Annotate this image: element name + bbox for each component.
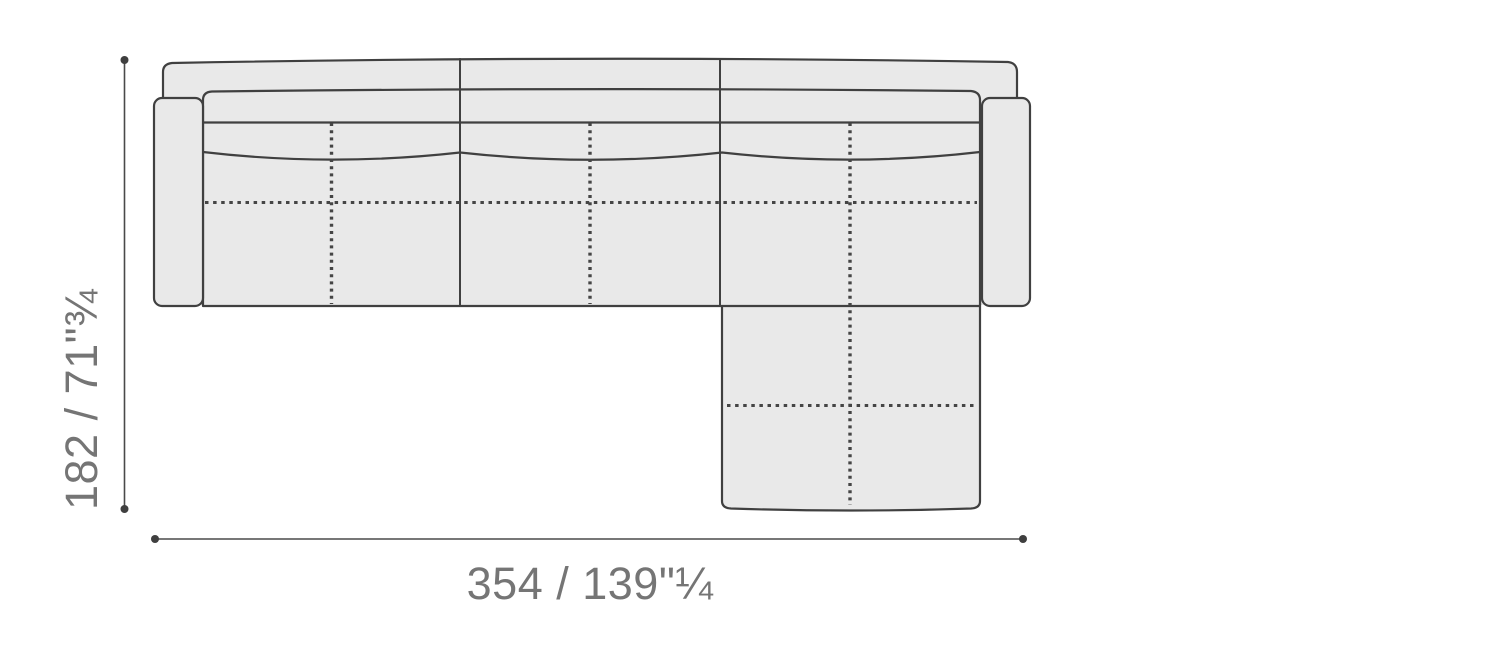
sofa-dimension-diagram: 182 / 71"¾ 354 / 139"¼ <box>0 0 1500 668</box>
left-armrest <box>154 98 203 306</box>
right-armrest <box>982 98 1030 306</box>
depth-dimension-endpoint-top <box>121 56 129 64</box>
depth-dimension-endpoint-bottom <box>121 505 129 513</box>
width-dimension-endpoint-right <box>1019 535 1027 543</box>
depth-dimension: 182 / 71"¾ <box>56 56 129 513</box>
width-dimension: 354 / 139"¼ <box>151 535 1027 609</box>
depth-dimension-label: 182 / 71"¾ <box>56 288 107 510</box>
diagram-canvas: 182 / 71"¾ 354 / 139"¼ <box>0 0 1500 668</box>
chaise-extension <box>722 306 980 511</box>
width-dimension-label: 354 / 139"¼ <box>467 558 715 609</box>
width-dimension-endpoint-left <box>151 535 159 543</box>
